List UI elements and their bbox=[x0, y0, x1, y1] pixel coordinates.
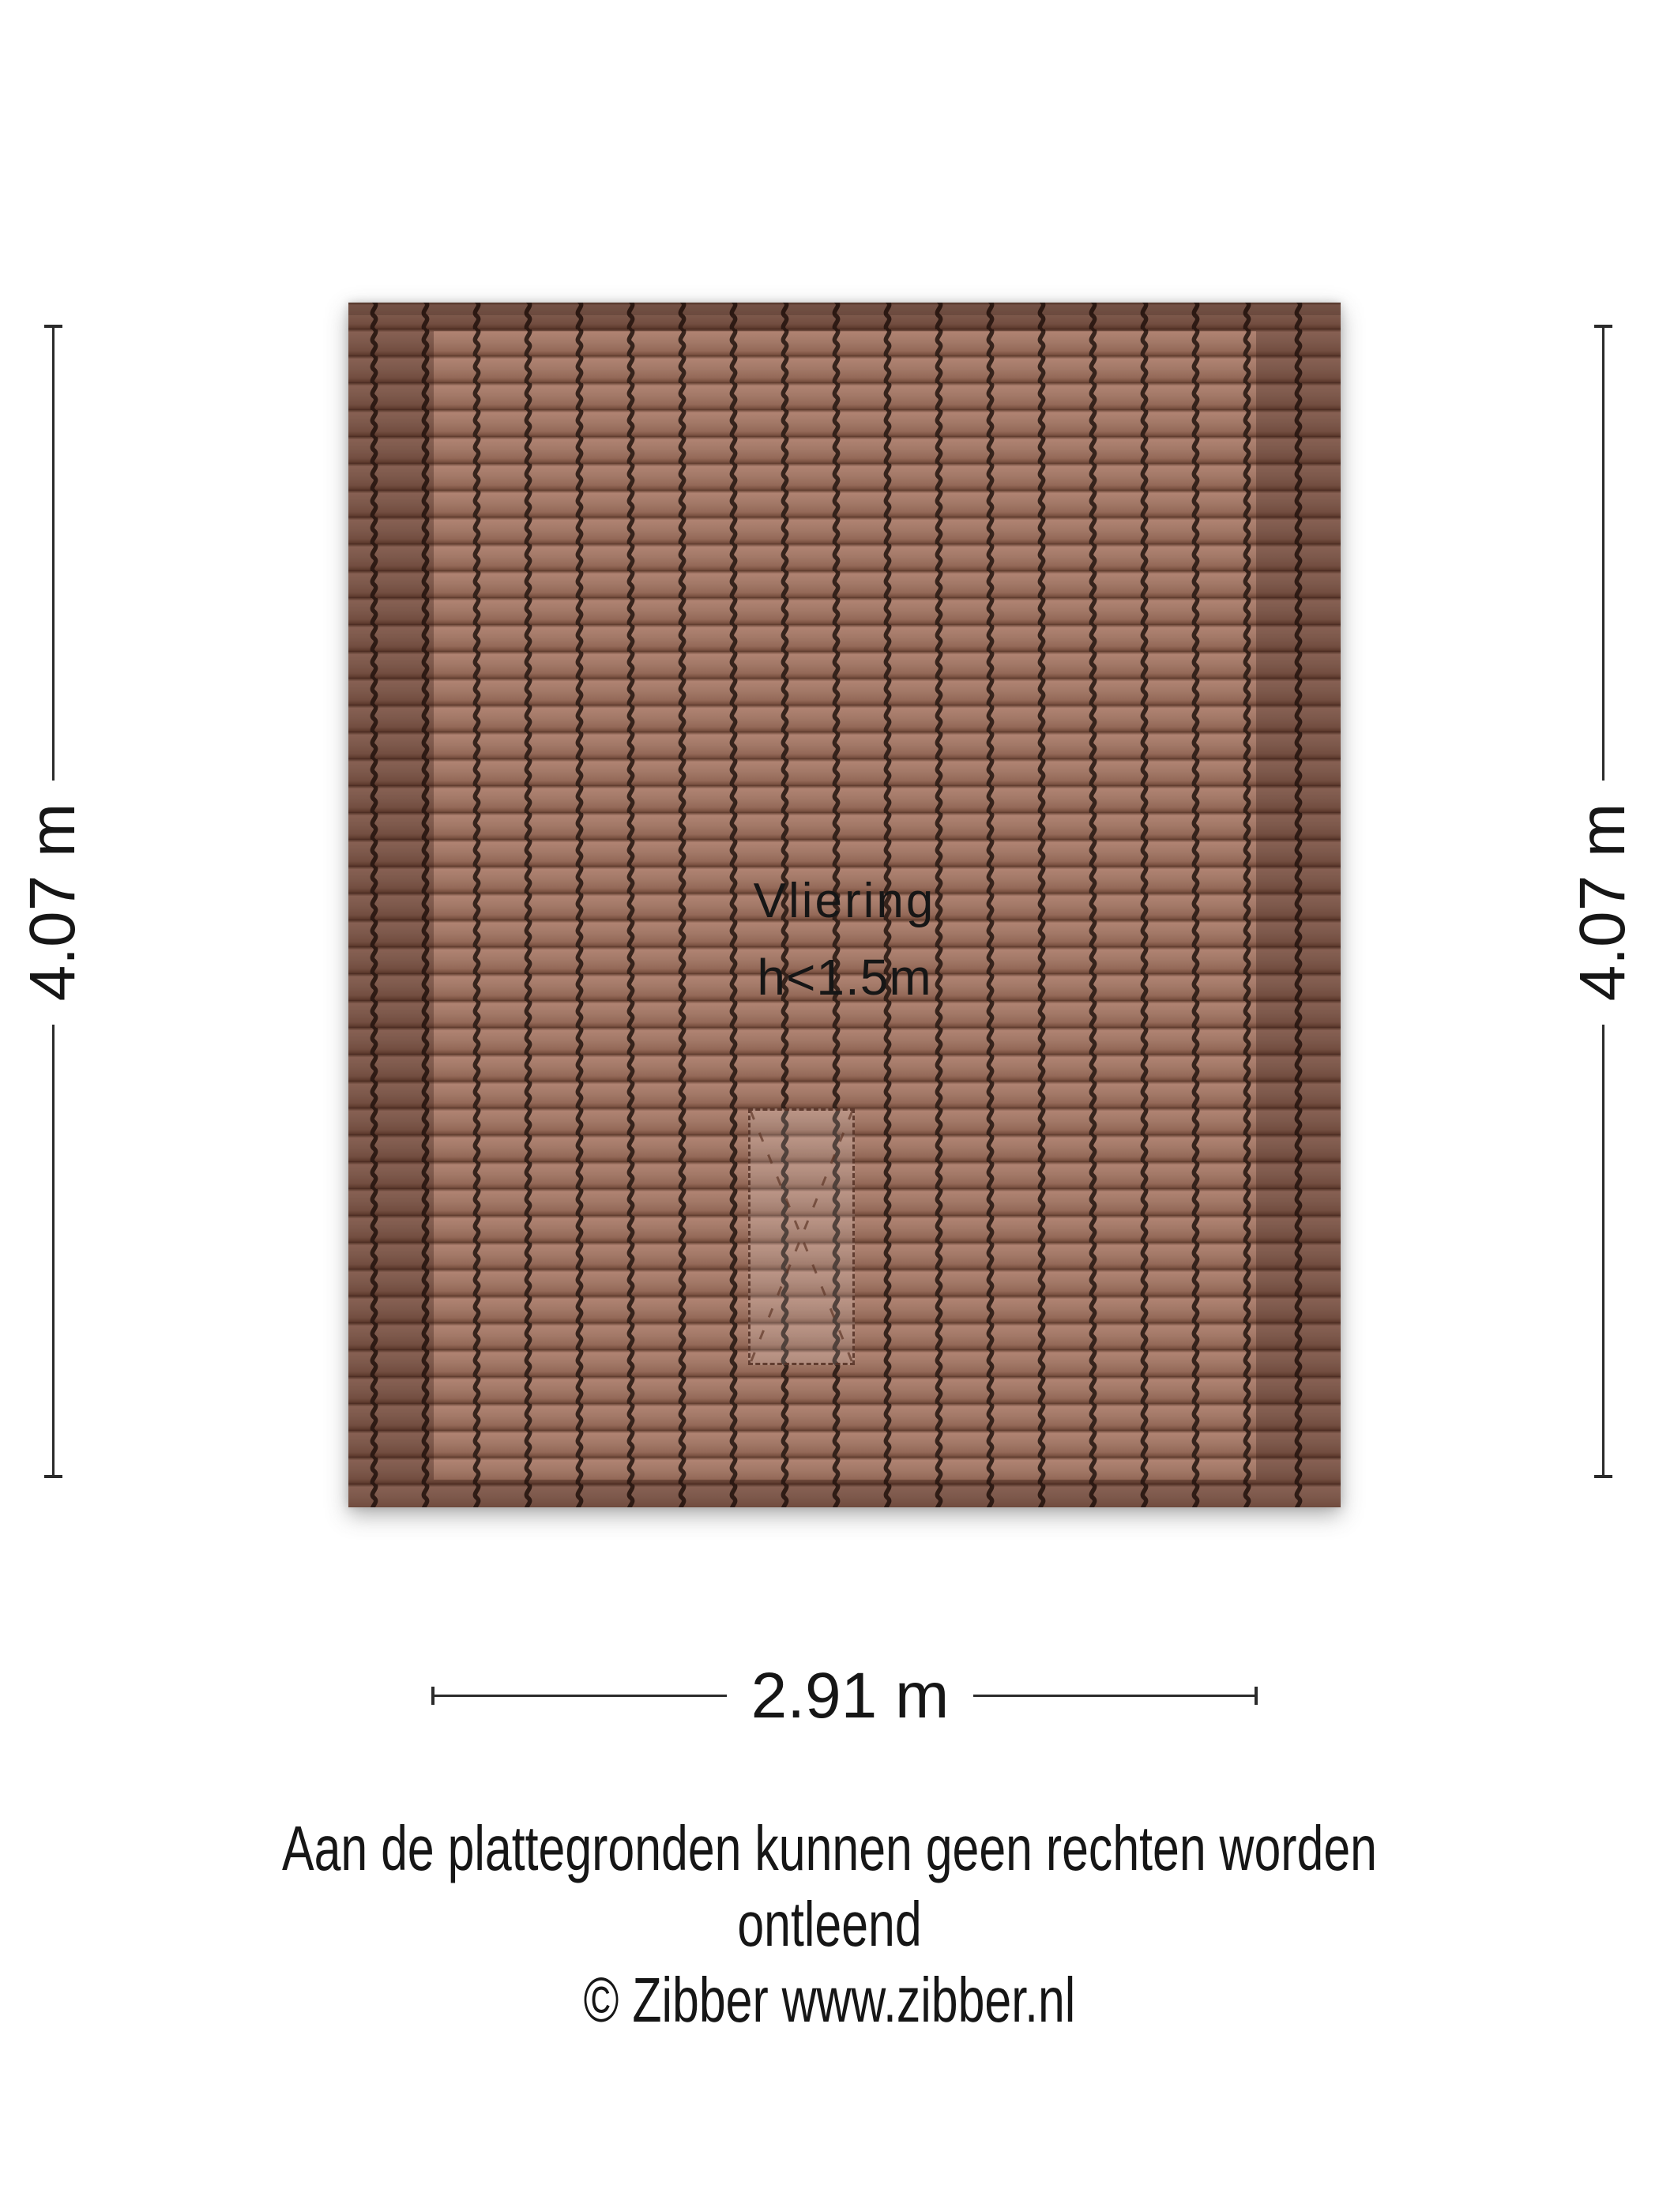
floorplan-page: Vliering h<1.5m 4.07 m 4.07 m 2.91 m Aan… bbox=[0, 0, 1659, 2212]
hatch-cross-icon bbox=[750, 1111, 852, 1363]
dimension-bottom-line-right bbox=[973, 1695, 1255, 1697]
disclaimer-line2: © Zibber www.zibber.nl bbox=[199, 1962, 1460, 2038]
hatch-outline bbox=[748, 1108, 855, 1365]
dimension-left-line-lower bbox=[52, 1025, 55, 1477]
room-height-label: h<1.5m bbox=[348, 948, 1341, 1006]
disclaimer-line1: Aan de plattegronden kunnen geen rechten… bbox=[199, 1811, 1460, 1962]
dimension-bottom-label: 2.91 m bbox=[751, 1659, 950, 1733]
roof-overhang-bottom bbox=[434, 1480, 1256, 1507]
dimension-bottom-cap-right bbox=[1255, 1687, 1258, 1705]
roof-ridge-edge bbox=[348, 303, 1341, 315]
dimension-right-label: 4.07 m bbox=[1566, 803, 1640, 1002]
dimension-left-line-upper bbox=[52, 328, 55, 781]
dimension-left-label: 4.07 m bbox=[16, 803, 90, 1002]
disclaimer: Aan de plattegronden kunnen geen rechten… bbox=[199, 1811, 1460, 2038]
dimension-bottom-line-left bbox=[434, 1695, 727, 1697]
room-label: Vliering bbox=[348, 873, 1341, 929]
roof-area: Vliering h<1.5m bbox=[348, 303, 1341, 1507]
dimension-right-cap-bottom bbox=[1594, 1475, 1612, 1478]
dimension-right-line-upper bbox=[1602, 328, 1604, 781]
dimension-right-line-lower bbox=[1602, 1025, 1604, 1477]
dimension-left-cap-bottom bbox=[44, 1475, 62, 1478]
